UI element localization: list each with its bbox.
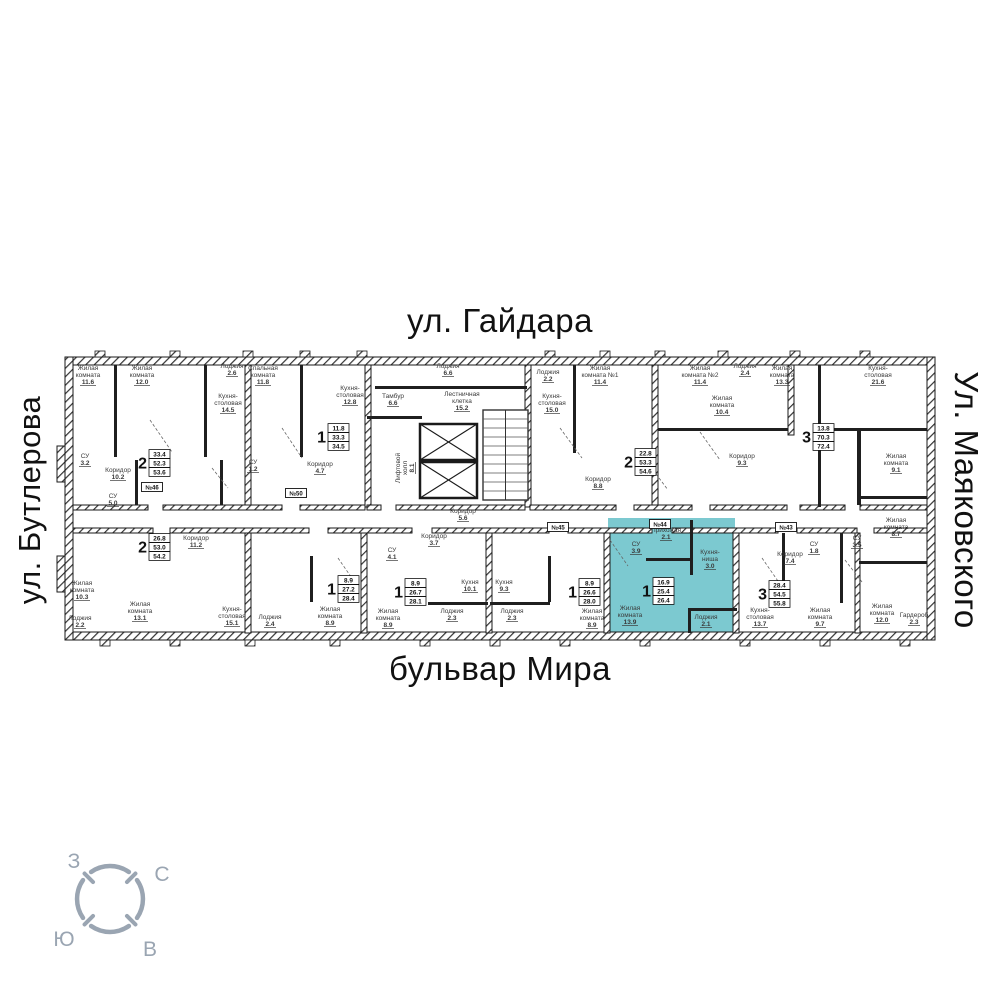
room-name: Лоджия bbox=[733, 363, 757, 370]
room-area: 11.4 bbox=[694, 379, 707, 386]
apartment-rooms-count: 1 bbox=[327, 582, 336, 599]
room-name: комната bbox=[870, 610, 895, 617]
room-name: Лоджия bbox=[536, 369, 560, 376]
room-name: комната bbox=[251, 372, 276, 379]
room-name: Жилая bbox=[132, 365, 153, 372]
room-area: 11.8 bbox=[257, 379, 270, 386]
room-area: 13.1 bbox=[134, 615, 147, 622]
door-tag-number: №45 bbox=[551, 524, 565, 531]
room-name: Жилая bbox=[378, 608, 399, 615]
room-area: 2.4 bbox=[265, 621, 274, 628]
room-name: комната bbox=[710, 402, 735, 409]
room-name: столовая bbox=[538, 400, 566, 407]
apartment-area: 54.5 bbox=[773, 591, 786, 598]
room-area: 11.2 bbox=[190, 542, 203, 549]
room-name: Жилая bbox=[130, 601, 151, 608]
wall bbox=[652, 365, 658, 507]
room-name: комната bbox=[618, 612, 643, 619]
room-area: 13.7 bbox=[754, 621, 767, 628]
room-name: Жилая bbox=[872, 603, 893, 610]
room-name: Жилая bbox=[772, 365, 793, 372]
room-name: комната bbox=[808, 614, 833, 621]
room-name: комната bbox=[884, 524, 909, 531]
room-name: СУ bbox=[632, 541, 641, 548]
room-area: 5.6 bbox=[458, 515, 467, 522]
apartment-total-area: 28.4 bbox=[342, 595, 355, 602]
room-area: 2.3 bbox=[447, 615, 456, 622]
partition-wall bbox=[367, 416, 422, 419]
room-name: Коридор bbox=[105, 467, 131, 474]
room-name: Лифтовой bbox=[394, 453, 402, 484]
apartment-rooms-count: 1 bbox=[642, 584, 651, 601]
door-tag[interactable]: №43 bbox=[776, 523, 797, 532]
compass-tick bbox=[127, 874, 135, 882]
room-area: 8.1 bbox=[409, 463, 416, 472]
apartment-living-area: 26.8 bbox=[153, 535, 166, 542]
wall bbox=[365, 365, 371, 507]
room-area: 8.9 bbox=[587, 622, 596, 629]
room-name: Коридор bbox=[307, 461, 333, 468]
facade-stub bbox=[655, 351, 665, 357]
door-tag[interactable]: №50 bbox=[286, 489, 307, 498]
compass-ring bbox=[91, 926, 129, 932]
apartment-area: 25.4 bbox=[657, 588, 670, 595]
room-area: 9.1 bbox=[891, 467, 900, 474]
facade-stub bbox=[790, 351, 800, 357]
partition-wall bbox=[859, 496, 927, 499]
room-area: 3.2 bbox=[80, 460, 89, 467]
room-area: 3.7 bbox=[429, 540, 438, 547]
wall bbox=[57, 446, 65, 482]
room-name: Жилая bbox=[712, 395, 733, 402]
partition-wall bbox=[857, 431, 861, 505]
compass-ring bbox=[77, 880, 83, 918]
room-name: Лоджия bbox=[436, 363, 460, 370]
room-area: 14.5 bbox=[222, 407, 235, 414]
partition-wall bbox=[310, 556, 313, 602]
room-name: комната bbox=[76, 372, 101, 379]
room-name: Кухня bbox=[461, 579, 479, 586]
room-label: СУ4.1 bbox=[386, 547, 398, 561]
apartment-living-area: 13.8 bbox=[817, 425, 830, 432]
door-tag[interactable]: №45 bbox=[548, 523, 569, 532]
apartment-rooms-count: 1 bbox=[394, 585, 403, 602]
apartment-area: 53.3 bbox=[639, 459, 652, 466]
apartment-living-area: 8.9 bbox=[411, 580, 420, 587]
apartment-area: 26.7 bbox=[409, 589, 422, 596]
partition-wall bbox=[646, 558, 691, 561]
compass: ЗСЮВ bbox=[53, 850, 169, 961]
room-area: 9.7 bbox=[815, 621, 824, 628]
facade-stub bbox=[243, 351, 253, 357]
room-name: Коридор bbox=[777, 551, 803, 558]
floor-plan: Жилаякомната11.6Жилаякомната12.0Лоджия2.… bbox=[0, 0, 1000, 1000]
facade-stub bbox=[718, 351, 728, 357]
wall bbox=[65, 357, 73, 640]
room-area: 3.9 bbox=[631, 548, 640, 555]
wall bbox=[361, 533, 367, 633]
wall bbox=[245, 365, 251, 507]
room-area: 3.5 bbox=[852, 542, 861, 549]
apartment-living-area: 33.4 bbox=[153, 451, 166, 458]
room-name: Лоджия bbox=[220, 363, 244, 370]
partition-wall bbox=[658, 428, 788, 431]
partition-wall bbox=[688, 608, 691, 633]
room-label: СУ5.0 bbox=[107, 493, 119, 507]
room-label: СУ1.8 bbox=[808, 541, 820, 555]
room-area: 21.6 bbox=[872, 379, 885, 386]
door-tag-number: №46 bbox=[145, 484, 159, 491]
room-name: Кухня- bbox=[750, 607, 770, 614]
partition-wall bbox=[204, 365, 207, 457]
room-area: 13.9 bbox=[624, 619, 637, 626]
facade-stub bbox=[100, 640, 110, 646]
compass-tick bbox=[85, 874, 93, 882]
room-name: столовая bbox=[746, 614, 774, 621]
room-name: Жилая bbox=[886, 517, 907, 524]
facade-stub bbox=[357, 351, 367, 357]
room-area: 4.1 bbox=[387, 554, 396, 561]
facade-stub bbox=[820, 640, 830, 646]
room-name: комната bbox=[770, 372, 795, 379]
apartment-area: 27.2 bbox=[342, 586, 355, 593]
facade-stub bbox=[245, 640, 255, 646]
room-name: Лоджия bbox=[500, 608, 524, 615]
room-name: СУ bbox=[109, 493, 118, 500]
room-name: Кухня- bbox=[868, 365, 888, 372]
room-name: Кухня bbox=[495, 579, 513, 586]
wall bbox=[672, 528, 778, 533]
room-area: 2.2 bbox=[543, 376, 552, 383]
room-name: Жилая bbox=[886, 453, 907, 460]
room-area: 13.3 bbox=[776, 379, 789, 386]
room-area: 2.6 bbox=[227, 370, 236, 377]
facade-stub bbox=[490, 640, 500, 646]
door-tag-number: №50 bbox=[289, 490, 303, 497]
compass-tick bbox=[85, 916, 93, 924]
room-name: Коридор bbox=[183, 535, 209, 542]
room-area: 8.9 bbox=[325, 620, 334, 627]
apartment-rooms-count: 1 bbox=[568, 585, 577, 602]
facade-stub bbox=[420, 640, 430, 646]
compass-ring bbox=[137, 880, 143, 918]
room-area: 11.4 bbox=[594, 379, 607, 386]
room-area: 15.2 bbox=[456, 405, 469, 412]
room-name: СУ bbox=[810, 541, 819, 548]
wall bbox=[170, 528, 309, 533]
room-name: Лестничная bbox=[444, 391, 480, 398]
wall bbox=[860, 505, 927, 510]
room-area: 12.0 bbox=[876, 617, 889, 624]
apartment-area: 70.3 bbox=[817, 434, 830, 441]
room-area: 12.0 bbox=[136, 379, 149, 386]
partition-wall bbox=[690, 520, 693, 575]
room-name: Коридор bbox=[450, 508, 476, 515]
apartment-total-area: 53.6 bbox=[153, 469, 166, 476]
partition-wall bbox=[820, 428, 927, 431]
apartment-area: 53.0 bbox=[153, 544, 166, 551]
room-name: комната bbox=[376, 615, 401, 622]
facade-stub bbox=[560, 640, 570, 646]
room-name: Жилая bbox=[78, 365, 99, 372]
wall bbox=[530, 505, 616, 510]
room-name: СУ bbox=[81, 453, 90, 460]
room-name: столовая bbox=[336, 392, 364, 399]
compass-letter-east: В bbox=[143, 938, 157, 961]
facade-stub bbox=[170, 351, 180, 357]
room-name: комната №2 bbox=[682, 372, 719, 379]
partition-wall bbox=[688, 608, 737, 611]
room-name: Коридор bbox=[729, 453, 755, 460]
facade-stub bbox=[860, 351, 870, 357]
door-tag-number: №44 bbox=[653, 521, 667, 528]
room-name: столовая bbox=[218, 613, 246, 620]
door-tag-number: №43 bbox=[779, 524, 793, 531]
room-area: 2.1 bbox=[661, 534, 670, 541]
room-name: СУ bbox=[249, 459, 258, 466]
partition-wall bbox=[840, 533, 843, 603]
room-area: 15.0 bbox=[546, 407, 559, 414]
room-name: ниша bbox=[702, 556, 718, 563]
apartment-living-area: 16.9 bbox=[657, 579, 670, 586]
wall bbox=[245, 533, 251, 633]
room-area: 2.3 bbox=[909, 619, 918, 626]
room-area: 2.3 bbox=[507, 615, 516, 622]
partition-wall bbox=[859, 561, 927, 564]
facade-stub bbox=[170, 640, 180, 646]
room-area: 15.1 bbox=[226, 620, 239, 627]
wall bbox=[634, 505, 692, 510]
compass-letter-west: З bbox=[68, 850, 81, 873]
room-name: Жилая bbox=[620, 605, 641, 612]
room-area: 10.1 bbox=[464, 586, 477, 593]
apartment-living-area: 11.8 bbox=[332, 425, 345, 432]
wall bbox=[57, 556, 65, 592]
apartment-rooms-count: 1 bbox=[317, 430, 326, 447]
room-name: СУ bbox=[388, 547, 397, 554]
wall bbox=[367, 505, 381, 510]
apartment-total-area: 54.2 bbox=[153, 553, 166, 560]
apartment-living-area: 22.8 bbox=[639, 450, 652, 457]
room-label: СУ3.2 bbox=[79, 453, 91, 467]
room-name: комната №1 bbox=[582, 372, 619, 379]
room-name: Лоджия bbox=[440, 608, 464, 615]
wall bbox=[73, 528, 153, 533]
facade-stub bbox=[330, 640, 340, 646]
elevator-shaft bbox=[420, 424, 477, 460]
wall bbox=[328, 528, 412, 533]
apartment-living-area: 28.4 bbox=[773, 582, 786, 589]
room-name: комната bbox=[130, 372, 155, 379]
partition-wall bbox=[548, 556, 551, 602]
room-name: Гардероб bbox=[900, 611, 929, 619]
room-area: 8.7 bbox=[891, 531, 900, 538]
room-name: холл bbox=[402, 461, 409, 475]
partition-wall bbox=[428, 602, 488, 605]
room-name: комната bbox=[580, 615, 605, 622]
room-area: 2.2 bbox=[75, 622, 84, 629]
wall bbox=[432, 528, 549, 533]
room-area: 2.1 bbox=[701, 621, 710, 628]
apartment-rooms-count: 2 bbox=[624, 455, 633, 472]
partition-wall bbox=[300, 365, 303, 457]
apartment-rooms-count: 2 bbox=[138, 540, 147, 557]
room-name: СУ bbox=[853, 535, 862, 542]
room-name: Коридор bbox=[585, 476, 611, 483]
compass-ring bbox=[91, 866, 129, 872]
wall bbox=[65, 632, 935, 640]
wall bbox=[163, 505, 282, 510]
room-name: комната bbox=[318, 613, 343, 620]
facade-stub bbox=[95, 351, 105, 357]
apartment-living-area: 8.9 bbox=[344, 577, 353, 584]
room-name: Кухня- bbox=[700, 549, 720, 556]
facade-stub bbox=[600, 351, 610, 357]
apartment-living-area: 8.9 bbox=[585, 580, 594, 587]
room-label: СУ3.9 bbox=[630, 541, 642, 555]
room-name: Жилая bbox=[582, 608, 603, 615]
apartment-total-area: 72.4 bbox=[817, 443, 830, 450]
wall bbox=[65, 357, 935, 365]
wall bbox=[800, 505, 845, 510]
wall bbox=[300, 505, 365, 510]
apartment-rooms-count: 3 bbox=[802, 430, 811, 447]
apartment-total-area: 28.1 bbox=[409, 598, 422, 605]
floor-plan-page: ул. Гайдара бульвар Мира ул. Бутлерова У… bbox=[0, 0, 1000, 1000]
room-area: 8.8 bbox=[593, 483, 602, 490]
compass-letter-north: С bbox=[154, 863, 169, 886]
room-area: 9.3 bbox=[737, 460, 746, 467]
room-area: 8.9 bbox=[383, 622, 392, 629]
room-name: клетка bbox=[452, 398, 472, 405]
partition-wall bbox=[490, 602, 550, 605]
facade-stub bbox=[300, 351, 310, 357]
room-name: Жилая bbox=[72, 580, 93, 587]
room-area: 11.6 bbox=[82, 379, 95, 386]
room-name: Тамбур bbox=[382, 392, 404, 400]
apartment-area: 52.3 bbox=[153, 460, 166, 467]
room-name: Жилая bbox=[590, 365, 611, 372]
wall bbox=[710, 505, 787, 510]
partition-wall bbox=[114, 365, 117, 457]
facade-stub bbox=[740, 640, 750, 646]
room-name: Коридор bbox=[421, 533, 447, 540]
room-label: СУ3.5 bbox=[851, 535, 863, 549]
room-name: Жилая bbox=[690, 365, 711, 372]
room-name: Кухня- bbox=[542, 393, 562, 400]
staircase bbox=[483, 410, 528, 500]
apartment-total-area: 26.4 bbox=[657, 597, 670, 604]
room-name: Лоджия bbox=[68, 615, 92, 622]
apartment-area: 33.3 bbox=[332, 434, 345, 441]
partition-wall bbox=[573, 365, 576, 453]
room-name: Лоджия bbox=[258, 614, 282, 621]
apartment-total-area: 54.6 bbox=[639, 468, 652, 475]
facade-stub bbox=[640, 640, 650, 646]
apartment-rooms-count: 3 bbox=[758, 587, 767, 604]
door-tag[interactable]: №44 bbox=[650, 520, 671, 529]
room-area: 6.6 bbox=[443, 370, 452, 377]
room-area: 2.4 bbox=[740, 370, 749, 377]
room-name: столовая bbox=[864, 372, 892, 379]
room-name: столовая bbox=[214, 400, 242, 407]
wall bbox=[927, 357, 935, 640]
apartment-rooms-count: 2 bbox=[138, 456, 147, 473]
compass-tick bbox=[127, 916, 135, 924]
wall bbox=[568, 528, 652, 533]
facade-stub bbox=[545, 351, 555, 357]
apartment-area: 26.6 bbox=[583, 589, 596, 596]
room-name: Жилая bbox=[810, 607, 831, 614]
room-name: Кухня- bbox=[340, 385, 360, 392]
room-area: 6.6 bbox=[388, 400, 397, 407]
room-name: Спальная bbox=[248, 365, 278, 372]
room-area: 1.8 bbox=[809, 548, 818, 555]
room-area: 1.2 bbox=[248, 466, 257, 473]
room-name: комната bbox=[128, 608, 153, 615]
room-area: 7.4 bbox=[785, 558, 794, 565]
wall bbox=[486, 533, 492, 633]
apartment-total-area: 28.0 bbox=[583, 598, 596, 605]
room-area: 3.0 bbox=[705, 563, 714, 570]
room-name: Кухня- bbox=[218, 393, 238, 400]
room-name: Лоджия bbox=[694, 614, 718, 621]
room-area: 9.3 bbox=[499, 586, 508, 593]
wall bbox=[604, 533, 610, 633]
partition-wall bbox=[220, 460, 223, 505]
elevator-shaft bbox=[420, 462, 477, 498]
room-name: Жилая bbox=[320, 606, 341, 613]
compass-letter-south: Ю bbox=[53, 928, 74, 951]
wall bbox=[797, 528, 857, 533]
room-area: 10.3 bbox=[76, 594, 89, 601]
wall bbox=[733, 533, 739, 633]
room-area: 10.2 bbox=[112, 474, 125, 481]
room-area: 4.7 bbox=[315, 468, 324, 475]
room-name: комната bbox=[70, 587, 95, 594]
room-label: СУ1.2 bbox=[247, 459, 259, 473]
room-name: Кухня- bbox=[222, 606, 242, 613]
room-name: комната bbox=[884, 460, 909, 467]
room-area: 10.4 bbox=[716, 409, 729, 416]
apartment-total-area: 55.8 bbox=[773, 600, 786, 607]
door-tag[interactable]: №46 bbox=[142, 483, 163, 492]
facade-stub bbox=[900, 640, 910, 646]
apartment-total-area: 34.5 bbox=[332, 443, 345, 450]
partition-wall bbox=[375, 386, 527, 389]
room-area: 5.0 bbox=[108, 500, 117, 507]
room-area: 12.8 bbox=[344, 399, 357, 406]
